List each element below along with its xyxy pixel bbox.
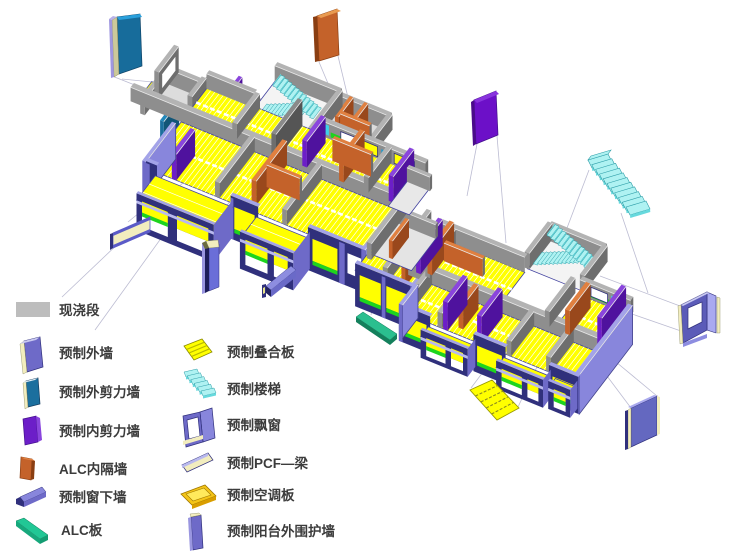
svg-text:预制叠合板: 预制叠合板 xyxy=(227,344,295,360)
svg-text:预制飘窗: 预制飘窗 xyxy=(227,417,281,433)
svg-text:预制窗下墙: 预制窗下墙 xyxy=(59,489,127,505)
svg-text:ALC内隔墙: ALC内隔墙 xyxy=(59,461,128,477)
svg-text:预制外墙: 预制外墙 xyxy=(59,345,113,361)
svg-text:现浇段: 现浇段 xyxy=(59,302,100,318)
svg-text:ALC板: ALC板 xyxy=(61,522,103,538)
svg-text:预制阳台外围护墙: 预制阳台外围护墙 xyxy=(227,523,335,539)
svg-text:预制内剪力墙: 预制内剪力墙 xyxy=(59,423,140,439)
svg-text:预制楼梯: 预制楼梯 xyxy=(227,381,281,397)
svg-text:预制PCF—梁: 预制PCF—梁 xyxy=(227,455,308,471)
svg-text:预制外剪力墙: 预制外剪力墙 xyxy=(59,384,140,400)
svg-text:预制空调板: 预制空调板 xyxy=(227,487,295,503)
